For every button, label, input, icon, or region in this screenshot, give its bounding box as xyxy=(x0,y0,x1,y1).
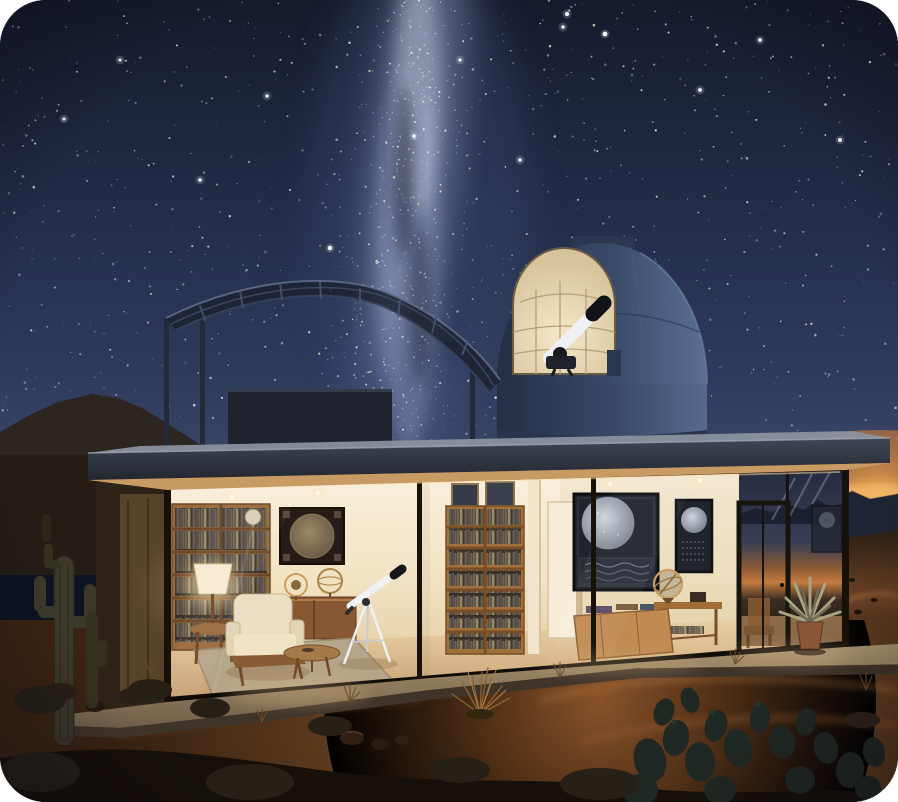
vignette-overlay xyxy=(0,0,898,802)
scene-svg xyxy=(0,0,898,802)
photo-stage xyxy=(0,0,898,802)
observatory-night-photo xyxy=(0,0,898,802)
